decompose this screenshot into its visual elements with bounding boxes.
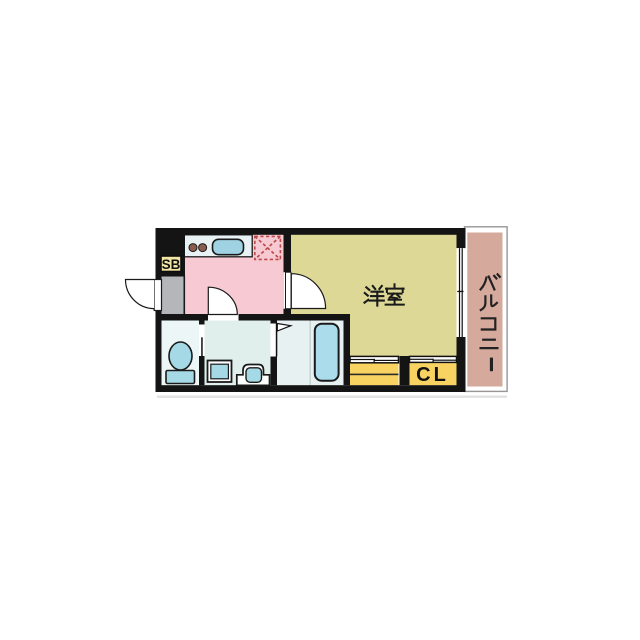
svg-text:CL: CL (416, 364, 449, 386)
svg-text:SB: SB (162, 257, 181, 272)
